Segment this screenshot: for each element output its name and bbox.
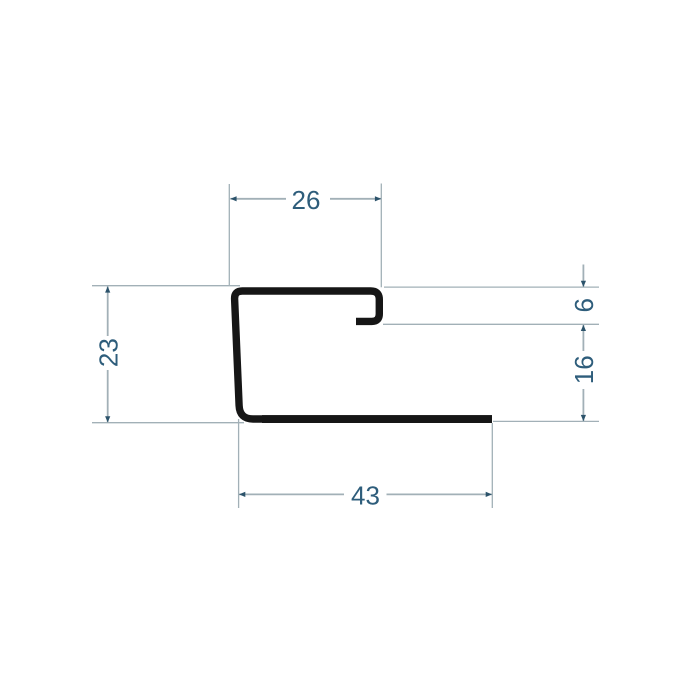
svg-text:26: 26	[292, 185, 321, 215]
svg-text:16: 16	[569, 355, 599, 384]
svg-text:43: 43	[351, 480, 380, 510]
svg-text:6: 6	[569, 298, 599, 312]
svg-text:23: 23	[94, 338, 124, 367]
